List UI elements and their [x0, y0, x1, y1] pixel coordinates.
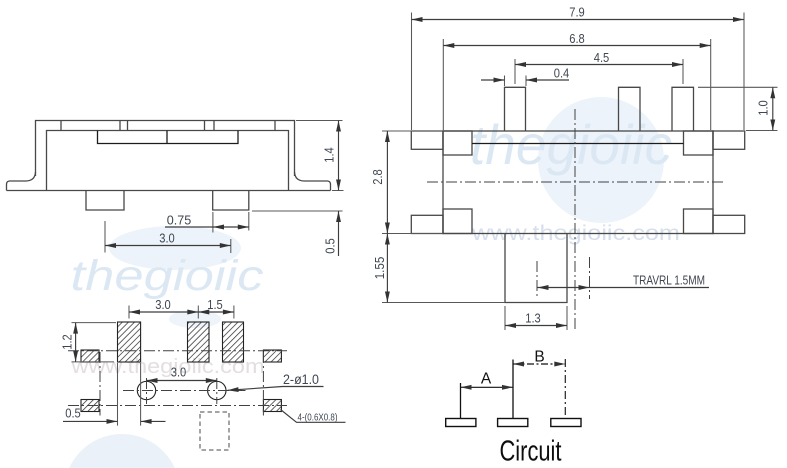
svg-text:1.4: 1.4 — [322, 147, 337, 163]
svg-text:A: A — [481, 371, 492, 388]
svg-text:1.0: 1.0 — [756, 100, 771, 116]
svg-text:7.9: 7.9 — [569, 5, 585, 20]
svg-text:thegioiic: thegioiic — [470, 113, 672, 176]
svg-text:2.8: 2.8 — [370, 169, 385, 185]
svg-text:0.4: 0.4 — [554, 66, 570, 81]
svg-text:2-ø1.0: 2-ø1.0 — [283, 372, 319, 387]
svg-text:3.0: 3.0 — [155, 297, 171, 312]
svg-text:4-(0.6X0.8): 4-(0.6X0.8) — [298, 413, 338, 424]
svg-text:1.5: 1.5 — [207, 297, 223, 312]
svg-text:B: B — [534, 349, 544, 366]
svg-text:1.2: 1.2 — [59, 334, 74, 350]
svg-text:0.5: 0.5 — [323, 238, 338, 254]
svg-text:1.55: 1.55 — [372, 257, 387, 280]
svg-text:4.5: 4.5 — [594, 50, 610, 65]
svg-text:3.0: 3.0 — [171, 365, 187, 380]
svg-text:0.5: 0.5 — [65, 406, 81, 421]
svg-text:thegioiic: thegioiic — [71, 252, 265, 300]
svg-text:1.3: 1.3 — [525, 311, 541, 326]
svg-text:0.75: 0.75 — [167, 213, 192, 228]
svg-text:TRAVRL 1.5MM: TRAVRL 1.5MM — [633, 274, 705, 288]
svg-text:Circuit: Circuit — [500, 436, 562, 468]
svg-text:3.0: 3.0 — [159, 231, 175, 246]
svg-text:6.8: 6.8 — [569, 31, 585, 46]
